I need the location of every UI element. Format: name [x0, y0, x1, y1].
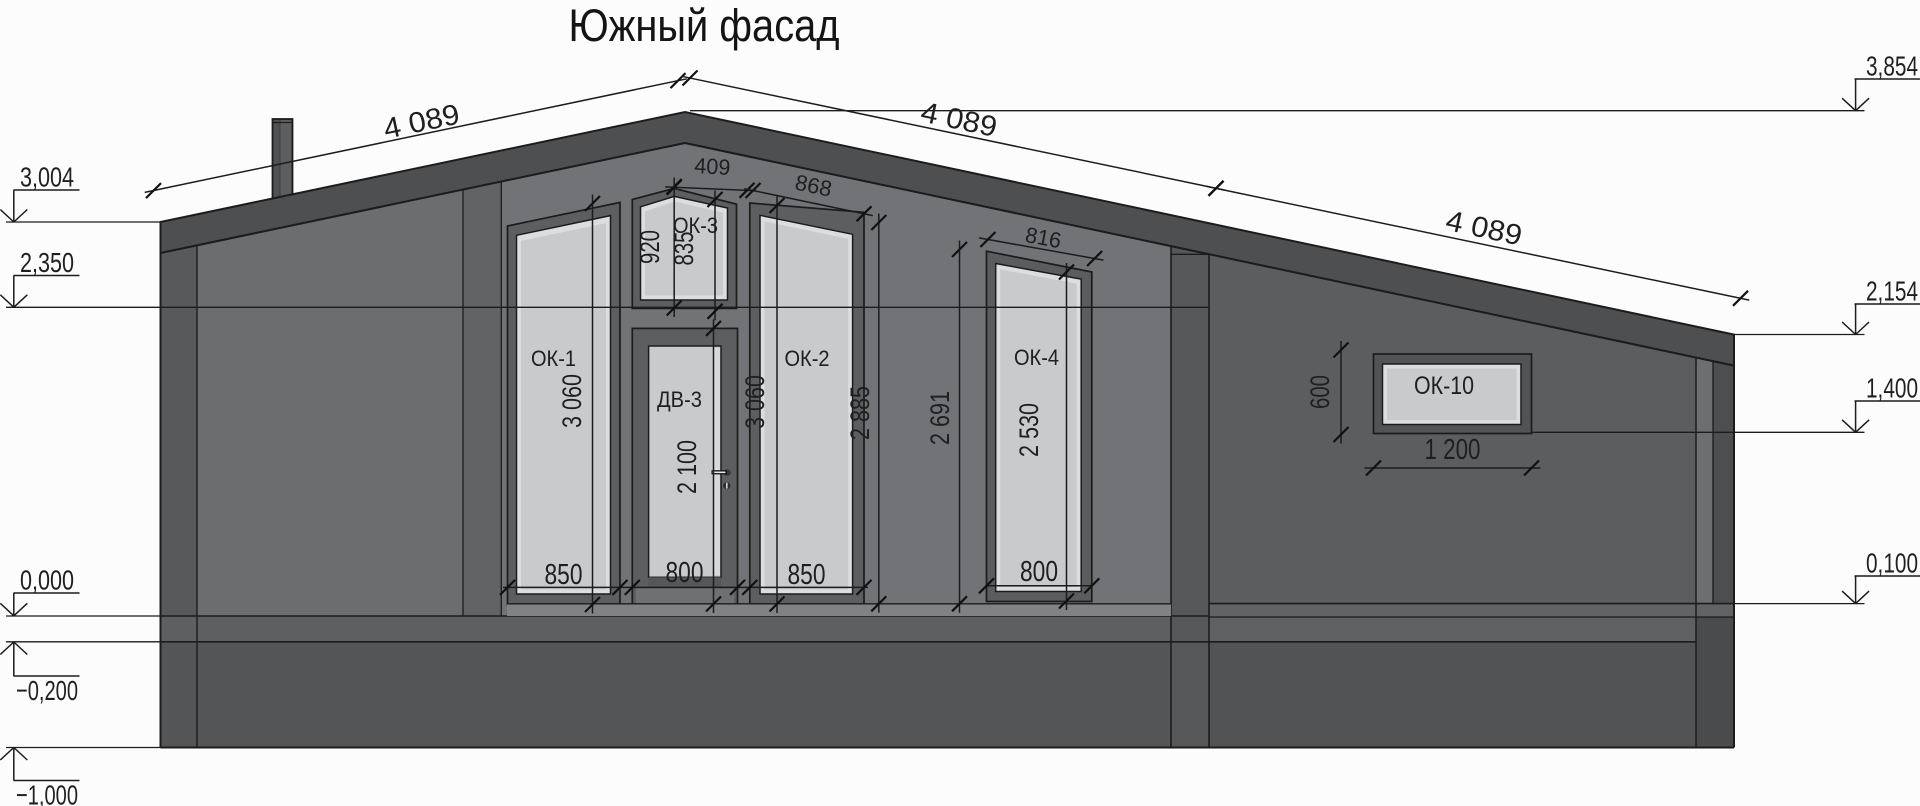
svg-text:3 060: 3 060 [557, 374, 587, 428]
svg-text:800: 800 [666, 557, 704, 589]
svg-text:2,350: 2,350 [20, 247, 74, 278]
svg-text:1,400: 1,400 [1866, 373, 1918, 404]
svg-text:3,004: 3,004 [20, 162, 74, 193]
svg-text:409: 409 [694, 153, 731, 180]
svg-text:0,000: 0,000 [20, 565, 74, 596]
svg-text:3,854: 3,854 [1866, 51, 1918, 82]
svg-text:850: 850 [545, 559, 583, 591]
svg-text:1 200: 1 200 [1425, 434, 1481, 466]
svg-text:ОК-10: ОК-10 [1414, 372, 1474, 400]
svg-text:ДВ-3: ДВ-3 [657, 387, 702, 412]
svg-text:2,154: 2,154 [1866, 276, 1918, 307]
svg-text:600: 600 [1305, 375, 1335, 409]
svg-text:ОК-1: ОК-1 [531, 346, 576, 371]
svg-text:3 060: 3 060 [740, 375, 770, 429]
svg-text:0,100: 0,100 [1866, 548, 1918, 579]
svg-text:2 100: 2 100 [672, 440, 702, 494]
svg-text:ОК-4: ОК-4 [1014, 345, 1059, 370]
svg-text:835: 835 [669, 232, 699, 266]
svg-text:ОК-2: ОК-2 [785, 346, 830, 371]
svg-text:850: 850 [788, 559, 826, 591]
svg-text:2 885: 2 885 [845, 386, 875, 440]
svg-text:800: 800 [1020, 556, 1058, 588]
svg-text:Южный фасад: Южный фасад [569, 0, 840, 51]
svg-text:−0,200: −0,200 [16, 675, 78, 706]
svg-text:2 691: 2 691 [925, 391, 955, 445]
svg-text:920: 920 [635, 230, 665, 264]
svg-text:−1,000: −1,000 [16, 780, 78, 806]
svg-text:2 530: 2 530 [1014, 403, 1044, 457]
